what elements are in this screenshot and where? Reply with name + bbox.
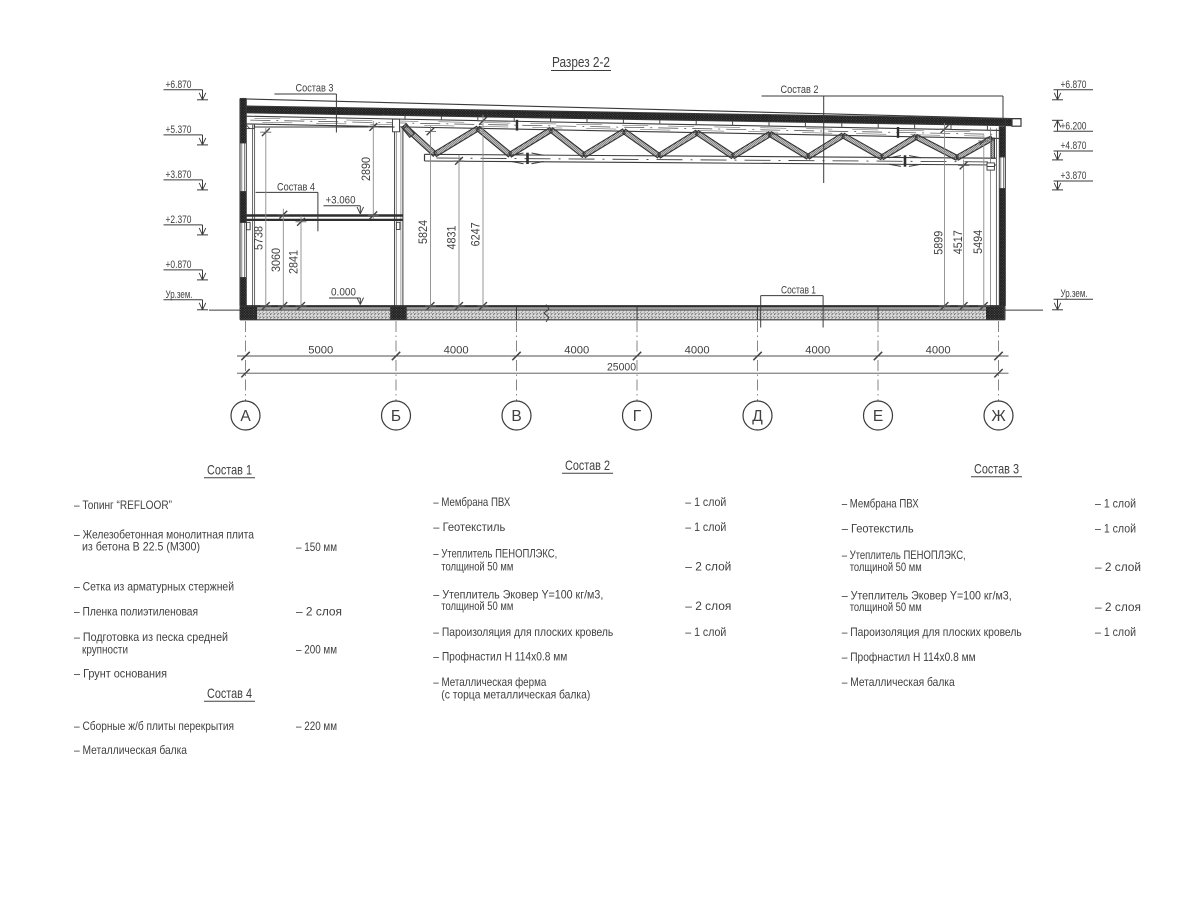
svg-text:– Мембрана ПВХ: – Мембрана ПВХ — [842, 497, 919, 511]
svg-text:2841: 2841 — [289, 250, 301, 274]
svg-text:+6.870: +6.870 — [1061, 79, 1087, 91]
svg-text:+3.870: +3.870 — [1061, 170, 1087, 182]
svg-text:Б: Б — [391, 408, 401, 425]
svg-text:Г: Г — [633, 408, 642, 425]
svg-text:Ур.зем.: Ур.зем. — [1061, 288, 1088, 300]
svg-text:+5.370: +5.370 — [166, 124, 192, 136]
svg-text:В: В — [511, 408, 521, 425]
svg-text:+6.200: +6.200 — [1061, 120, 1087, 132]
svg-text:Состав 4: Состав 4 — [207, 686, 252, 701]
svg-text:– 2 слоя: – 2 слоя — [685, 599, 731, 613]
svg-text:– Сборные ж/б плиты перекрыти: – Сборные ж/б плиты перекрытия — [74, 719, 234, 733]
svg-text:4000: 4000 — [685, 345, 710, 357]
svg-text:– 220 мм: – 220 мм — [296, 719, 337, 733]
svg-text:Состав 2: Состав 2 — [565, 458, 610, 473]
svg-text:4000: 4000 — [926, 345, 951, 357]
svg-text:– Пароизоляция для плоских кр: – Пароизоляция для плоских кровель — [433, 625, 613, 639]
svg-text:Состав 1: Состав 1 — [207, 463, 252, 478]
svg-text:– 2 слоя: – 2 слоя — [296, 605, 342, 619]
svg-text:Состав 2: Состав 2 — [781, 84, 819, 96]
svg-text:А: А — [240, 408, 251, 425]
svg-text:+3.060: +3.060 — [326, 195, 356, 207]
svg-text:(с торца металлическая балка): (с торца металлическая балка) — [441, 688, 590, 702]
svg-text:5899: 5899 — [934, 231, 946, 255]
svg-text:– Металлическая балка: – Металлическая балка — [842, 675, 955, 689]
svg-text:4000: 4000 — [805, 345, 830, 357]
svg-text:– 1 слой: – 1 слой — [1095, 625, 1136, 639]
svg-text:– Мембрана ПВХ: – Мембрана ПВХ — [433, 495, 510, 509]
svg-text:+4.870: +4.870 — [1061, 140, 1087, 152]
svg-text:Состав 3: Состав 3 — [974, 462, 1019, 477]
svg-text:– Утеплитель ПЕНОПЛЭКС,: – Утеплитель ПЕНОПЛЭКС, — [433, 547, 557, 561]
svg-text:4000: 4000 — [564, 345, 589, 357]
svg-text:толщиной 50 мм: толщиной 50 мм — [441, 599, 513, 613]
svg-text:– Геотекстиль: – Геотекстиль — [433, 520, 505, 534]
svg-text:– Профнастил Н 114х0.8 мм: – Профнастил Н 114х0.8 мм — [433, 650, 567, 664]
svg-text:+3.870: +3.870 — [166, 169, 192, 181]
svg-text:Ур.зем.: Ур.зем. — [166, 289, 193, 301]
svg-text:– Геотекстиль: – Геотекстиль — [842, 522, 914, 536]
svg-text:– Сетка из арматурных стержне: – Сетка из арматурных стержней — [74, 580, 234, 594]
svg-text:толщиной 50 мм: толщиной 50 мм — [850, 560, 922, 574]
svg-text:из бетона В 22.5 (М300): из бетона В 22.5 (М300) — [82, 540, 200, 554]
svg-text:толщиной 50 мм: толщиной 50 мм — [850, 600, 922, 614]
svg-text:5738: 5738 — [253, 226, 265, 250]
svg-text:– Металлическая балка: – Металлическая балка — [74, 743, 187, 757]
svg-text:– 1 слой: – 1 слой — [1095, 522, 1136, 536]
svg-text:6247: 6247 — [471, 222, 483, 246]
svg-text:4517: 4517 — [953, 230, 965, 254]
svg-text:4000: 4000 — [444, 345, 469, 357]
svg-text:4831: 4831 — [447, 226, 459, 250]
svg-text:2890: 2890 — [361, 157, 373, 181]
svg-text:Состав 1: Состав 1 — [781, 284, 816, 296]
svg-text:толщиной 50 мм: толщиной 50 мм — [441, 560, 513, 574]
svg-text:– Грунт основания: – Грунт основания — [74, 667, 167, 681]
svg-text:– Пленка полиэтиленовая: – Пленка полиэтиленовая — [74, 605, 198, 619]
svg-text:25000: 25000 — [607, 362, 636, 374]
svg-text:– 2 слой: – 2 слой — [1095, 560, 1141, 574]
svg-text:– Профнастил Н 114х0.8 мм: – Профнастил Н 114х0.8 мм — [842, 650, 976, 664]
svg-text:3060: 3060 — [271, 248, 283, 272]
svg-text:– 2 слой: – 2 слой — [685, 560, 731, 574]
svg-text:Разрез 2-2: Разрез 2-2 — [552, 55, 610, 71]
svg-text:– 150 мм: – 150 мм — [296, 540, 337, 554]
svg-text:+6.870: +6.870 — [166, 79, 192, 91]
svg-text:5000: 5000 — [308, 345, 333, 357]
svg-text:Д: Д — [752, 408, 763, 425]
svg-text:5494: 5494 — [973, 229, 985, 254]
svg-text:– 2 слоя: – 2 слоя — [1095, 600, 1141, 614]
svg-text:Е: Е — [873, 408, 883, 425]
svg-text:0.000: 0.000 — [331, 287, 356, 299]
svg-text:– 1 слой: – 1 слой — [685, 625, 726, 639]
svg-text:Состав 4: Состав 4 — [277, 182, 315, 194]
svg-text:Состав 3: Состав 3 — [296, 82, 334, 94]
svg-text:– 200 мм: – 200 мм — [296, 643, 337, 657]
svg-text:– 1 слой: – 1 слой — [685, 520, 726, 534]
svg-text:+0.870: +0.870 — [166, 259, 192, 271]
svg-text:– Топинг “REFLOOR”: – Топинг “REFLOOR” — [74, 498, 172, 512]
svg-text:Ж: Ж — [991, 408, 1006, 425]
svg-text:+2.370: +2.370 — [166, 214, 192, 226]
svg-text:крупности: крупности — [82, 643, 128, 657]
svg-text:– 1 слой: – 1 слой — [685, 495, 726, 509]
svg-text:5824: 5824 — [418, 219, 430, 244]
svg-text:– 1 слой: – 1 слой — [1095, 497, 1136, 511]
svg-text:– Пароизоляция для плоских кр: – Пароизоляция для плоских кровель — [842, 625, 1022, 639]
